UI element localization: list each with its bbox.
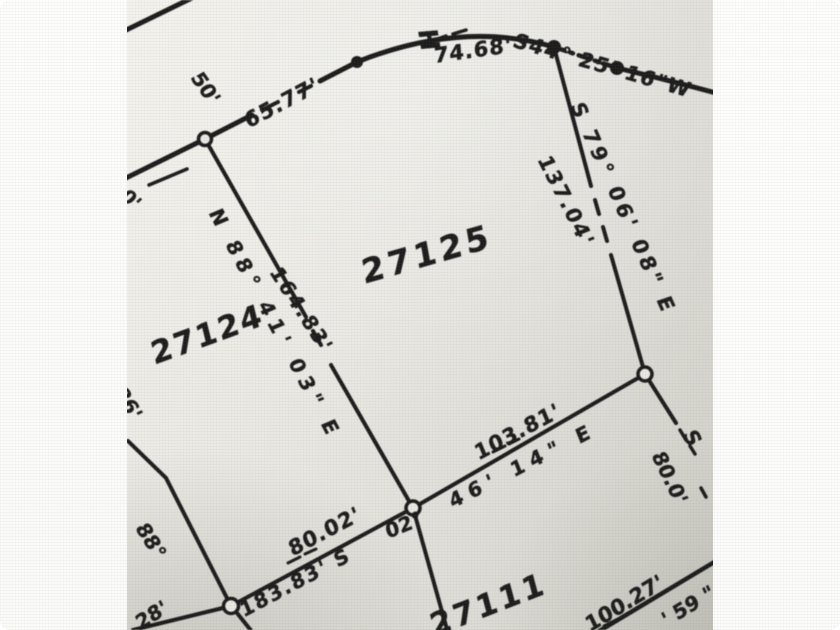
survey-monument-dot [352,57,363,68]
lot-corner-circle [199,133,212,146]
road-edge-line [118,0,196,34]
photo-white-margin-left [0,0,127,630]
plat-map-photo: H 74.68' S44° 25' 16"W 50' 65.77' 0' N 8… [0,0,840,630]
tick-dash [690,446,695,454]
road-frontage-line [320,62,357,81]
boundary-103-line [413,374,645,508]
boundary-164-line [331,365,413,508]
boundary-137-dash [595,200,599,214]
tick-dash [149,169,187,185]
boundary-137-dash [603,227,607,241]
lot-corner-circle [638,367,652,381]
photo-white-margin-right [713,0,840,630]
tick-dash [701,488,706,497]
tick-dash [453,30,466,34]
